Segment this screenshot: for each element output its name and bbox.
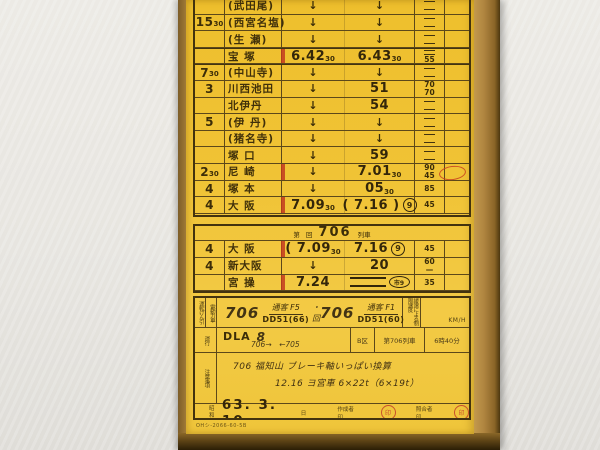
departure-cell: ( 7.16 )9 [345,197,415,213]
run-minutes-cell [195,275,225,291]
limit-cell [415,0,445,14]
arrival-cell: ↓ [282,164,345,180]
train-type-1: 通客 F5 [269,302,303,315]
arrival-pass-arrow: ↓ [308,259,317,272]
loco-row-label-1: 運転けん引 [195,298,206,327]
timetable-row: 4大 阪( 7.09307.16945 [195,241,469,258]
limit-cell [415,31,445,47]
margin-cell [445,49,469,64]
run-minutes: 4 [205,242,214,256]
arrival-cell: ↓ [282,31,345,47]
departure-cell: ↓ [345,114,415,130]
departure-cell: 51 [345,81,415,97]
duty-handwritten-note: 706→ ←705 [251,339,300,350]
speed-limit-label: 緩速による制限速度 [403,298,421,327]
arrival-pass-arrow: ↓ [308,182,317,195]
arrival-time: 7.24 [296,275,330,290]
departure-cell: ↓ [345,131,415,147]
departure-pass-arrow: ↓ [375,132,384,145]
margin-cell [445,15,469,31]
timetable-row: 宝 塚6.42306.433055 [195,48,469,65]
train-706-header: 第 回 706 列車 [195,226,469,241]
station-name: 宮 操 [228,275,256,290]
departure-cell: 市9 [345,275,415,291]
header-suffix: 列車 [358,229,371,239]
limit-cell: 55 [415,49,445,64]
train-number: 706 [318,226,351,239]
station-cell: (西宮名塩) [225,15,282,31]
maker-label: 作成者 印 [337,405,358,421]
margin-cell [445,65,469,80]
arrival-cell: ↓ [282,131,345,147]
departure-time: 59 [370,148,389,163]
run-minutes: 5 [205,115,214,129]
departure-pass-arrow: ↓ [375,116,384,129]
departure-cell: ↓ [345,15,415,31]
run-minutes-cell: 4 [195,258,225,274]
departure-pass-arrow: ↓ [375,66,384,79]
limit-value: 55 [424,56,434,64]
arrival-cell: ↓ [282,114,345,130]
departure-pass-arrow: ↓ [375,0,384,12]
arrival-cell: ↓ [282,98,345,114]
timetable-row: 塚 口↓59 [195,147,469,164]
arrival-pass-arrow: ↓ [308,0,317,12]
station-name: (猪名寺) [228,131,274,146]
departure-time: 6.43 [358,49,392,64]
departure-cell: ↓ [345,65,415,80]
departure-cell: 20 [345,258,415,274]
margin-cell [445,131,469,147]
departure-pass-arrow: ↓ [375,33,384,46]
departure-time-seconds: 30 [392,55,402,63]
departure-time: ( 7.16 ) [343,198,400,213]
run-minutes-cell [195,0,225,14]
timetable-row: (猪名寺)↓↓ [195,131,469,148]
separator: ・回 [312,302,320,324]
limit-cell [415,65,445,80]
departure-time: 7.01 [358,164,392,179]
run-minutes: 2 [200,165,209,179]
station-cell: 新大阪 [225,258,282,274]
arrival-cell: ↓ [282,15,345,31]
margin-cell [445,114,469,130]
station-name: (西宮名塩) [228,15,286,30]
run-minutes-cell [195,98,225,114]
photo-of-train-staff-card: (武田尾)↓↓1530(西宮名塩)↓↓(生 瀬)↓↓宝 塚6.42306.433… [0,0,600,450]
limit-cell [415,131,445,147]
no-limit-mark [424,50,435,55]
station-cell: 北伊丹 [225,98,282,114]
maker-stamp-icon: 印 [381,405,396,420]
loco-2: 通客 F1 DD51(60) [357,302,404,324]
era-label: 昭和 [209,406,218,418]
no-limit-mark [424,68,435,77]
run-minutes: 15 [196,15,214,29]
station-name: 尼 崎 [228,164,256,179]
arrival-pass-arrow: ↓ [308,165,317,178]
timetable-row: 4大 阪7.0930( 7.16 )945 [195,197,469,214]
arrival-pass-arrow: ↓ [308,132,317,145]
run-minutes: 3 [205,82,214,96]
arrival-pass-arrow: ↓ [308,149,317,162]
arrival-time-seconds: 30 [325,55,335,63]
arrival-pass-arrow: ↓ [308,66,317,79]
limit-cell: 85 [415,181,445,197]
limit-cell: 35 [415,275,445,291]
limit-cell: 45 [415,197,445,213]
station-name: 宝 塚 [228,49,256,64]
loco-row-label-2: 電動力車 [206,298,217,327]
timetable-row: 宮 操7.24市935 [195,275,469,292]
arrival-pass-arrow: ↓ [308,33,317,46]
departure-cell: 54 [345,98,415,114]
checker-label: 照合者印 [416,405,435,421]
station-name: (生 瀬) [228,32,267,47]
loco-1: 通客 F5 DD51(66) [262,302,309,324]
duty-row: 運行 DLA 8 706→ ←705 B区 第706列車 6時40分 [195,328,469,353]
station-cell: (生 瀬) [225,31,282,47]
margin-cell [445,258,469,274]
departure-cell: ↓ [345,31,415,47]
limit-value: 70 [424,89,434,97]
run-minutes: 4 [205,259,214,273]
margin-cell [445,81,469,97]
loco-number-2: DD51(60) [357,315,404,324]
run-minutes-cell: 3 [195,81,225,97]
departure-cell: 7.0130 [345,164,415,180]
return-train-706-table: 第 回 706 列車 4大 阪( 7.09307.169454新大阪↓2060—… [193,224,471,293]
limit-value: 45 [424,172,434,180]
run-seconds: 30 [209,170,219,178]
train-no-outbound: 706 [225,304,259,322]
station-cell: 大 阪 [225,241,282,257]
arrival-time: 7.09 [291,198,325,213]
run-minutes-cell: 4 [195,197,225,213]
departure-terminal-rule [350,277,386,287]
run-minutes-cell [195,31,225,47]
timetable-row: 北伊丹↓54 [195,98,469,115]
station-cell: 塚 口 [225,147,282,163]
note-line-2: 12.16 ヨ宮車 6×22t（6×19t） [275,376,469,389]
margin-cell [445,181,469,197]
limit-cell: 45 [415,241,445,257]
departure-cell: 0530 [345,181,415,197]
timetable-row: 4新大阪↓2060— [195,258,469,275]
dla-code: DLA [223,330,251,343]
departure-time-seconds: 30 [392,171,402,179]
run-minutes: 4 [205,198,214,212]
no-limit-mark [424,35,435,44]
limit-cell [415,98,445,114]
no-limit-mark [424,151,435,160]
limit-cell [415,147,445,163]
limit-value: 45 [424,245,434,253]
timetable-card: (武田尾)↓↓1530(西宮名塩)↓↓(生 瀬)↓↓宝 塚6.42306.433… [186,0,474,434]
departure-time-seconds: 30 [384,188,394,196]
arrival-cell: ↓ [282,81,345,97]
run-seconds: 30 [209,70,219,78]
run-minutes-cell: 1530 [195,15,225,31]
margin-cell [445,241,469,257]
timetable-row: 5(伊 丹)↓↓ [195,114,469,131]
departure-time: 7.16 [354,241,388,256]
station-name: (中山寺) [228,65,274,80]
limit-cell: 60— [415,258,445,274]
limit-cell [415,15,445,31]
locomotive-row: 運転けん引 電動力車 706 通客 F5 DD51(66) ・回 706 通客 … [195,298,469,328]
run-minutes-cell [195,131,225,147]
arrival-time-seconds: 30 [325,204,335,212]
run-minutes-cell: 230 [195,164,225,180]
station-cell: 宮 操 [225,275,282,291]
margin-cell [445,98,469,114]
limit-value: 35 [424,279,434,287]
margin-cell [445,275,469,291]
station-cell: (中山寺) [225,65,282,80]
departure-time: 05 [365,181,384,196]
limit-value: 45 [424,201,434,209]
station-name: 塚 口 [228,148,256,163]
station-cell: 宝 塚 [225,49,282,64]
note-line-1: 706 福知山 ブレーキ軸いっぱい換算 [233,359,469,372]
limit-cell [415,114,445,130]
station-name: (武田尾) [228,0,274,13]
station-name: 大 阪 [228,241,256,256]
margin-cell [445,147,469,163]
duty-cell-2: 第706列車 [375,328,425,352]
no-limit-mark [424,118,435,127]
board-bottom-edge [178,433,500,450]
duty-cell: DLA 8 706→ ←705 [217,328,351,352]
station-cell: 川西池田 [225,81,282,97]
run-minutes-cell: 4 [195,181,225,197]
run-minutes-cell: 730 [195,65,225,80]
timetable-row: 3川西池田↓517070 [195,81,469,98]
departure-cell: 6.4330 [345,49,415,64]
train-no-return: 706 [320,304,354,322]
run-minutes: 4 [205,182,214,196]
timetable-row: 1530(西宮名塩)↓↓ [195,15,469,32]
timetable-row: 730(中山寺)↓↓ [195,64,469,81]
station-name: 川西池田 [228,81,274,96]
station-name: 大 阪 [228,198,256,213]
station-name: 北伊丹 [228,98,263,113]
station-cell: (伊 丹) [225,114,282,130]
station-cell: 尼 崎 [225,164,282,180]
arrival-time: ( 7.09 [285,241,331,256]
date-row: 昭和 63. 3. 10 日 作成者 印 印 照合者印 印 [195,404,469,420]
train-type-2: 通客 F1 [364,302,398,315]
limit-cell: 7070 [415,81,445,97]
form-number: OHシ-2066-60-5B [196,422,247,429]
departure-time: 51 [370,81,389,96]
limit-value: — [426,266,434,274]
no-limit-mark [424,18,435,27]
departure-time: 20 [370,258,389,273]
kmh-unit: KM/H [448,317,466,324]
no-limit-mark [424,134,435,143]
arrival-time-seconds: 30 [331,248,341,256]
run-minutes-cell [195,147,225,163]
station-cell: (猪名寺) [225,131,282,147]
departure-pass-arrow: ↓ [375,16,384,29]
margin-cell [445,197,469,213]
arrival-cell: 7.0930 [282,197,345,213]
duty-cell-3: 6時40分 [425,328,469,352]
station-name: (伊 丹) [228,115,267,130]
no-limit-mark [424,101,435,110]
notes-row: 注意事項 706 福知山 ブレーキ軸いっぱい換算 12.16 ヨ宮車 6×22t… [195,353,469,404]
run-minutes-cell [195,49,225,64]
arrival-cell: ( 7.0930 [282,241,345,257]
timetable-row: 4塚 本↓053085 [195,181,469,198]
arrival-time: 6.42 [291,49,325,64]
platform-number-circle: 9 [391,242,405,256]
limit-value: 85 [424,185,434,193]
header-prefix: 第 [293,229,300,239]
arrival-cell: 7.24 [282,275,345,291]
run-minutes: 7 [200,66,209,80]
loco-number-1: DD51(66) [262,315,309,324]
main-timetable: (武田尾)↓↓1530(西宮名塩)↓↓(生 瀬)↓↓宝 塚6.42306.433… [193,0,471,217]
duty-label: 運行 [195,328,217,352]
day-suffix: 日 [301,409,307,417]
timetable-row: (武田尾)↓↓ [195,0,469,15]
margin-cell [445,164,469,180]
run-minutes-cell: 5 [195,114,225,130]
departure-cell: ↓ [345,0,415,14]
station-cell: (武田尾) [225,0,282,14]
arrival-pass-arrow: ↓ [308,116,317,129]
departure-cell: 7.169 [345,241,415,257]
board-right-edge [473,0,500,450]
duty-cell-1: B区 [351,328,375,352]
timetable-row: (生 瀬)↓↓ [195,31,469,48]
arrival-cell: ↓ [282,258,345,274]
header-mid: 回 [306,229,313,239]
run-seconds: 30 [213,20,223,28]
station-name: 塚 本 [228,181,256,196]
timetable-row: 230尼 崎↓7.01309045 [195,164,469,181]
station-cell: 大 阪 [225,197,282,213]
arrival-cell: ↓ [282,0,345,14]
departure-cell: 59 [345,147,415,163]
speed-limit-cell: KM/H [421,298,469,327]
arrival-cell: ↓ [282,65,345,80]
notes-label: 注意事項 [195,353,217,403]
station-cell: 塚 本 [225,181,282,197]
yard-code-circle: 市9 [389,276,410,288]
arrival-pass-arrow: ↓ [308,16,317,29]
arrival-pass-arrow: ↓ [308,99,317,112]
info-table: 運転けん引 電動力車 706 通客 F5 DD51(66) ・回 706 通客 … [193,296,471,420]
arrival-cell: ↓ [282,181,345,197]
arrival-cell: ↓ [282,147,345,163]
loco-assignment: 706 通客 F5 DD51(66) ・回 706 通客 F1 DD51(60) [217,298,403,327]
train-706-rows: 4大 阪( 7.09307.169454新大阪↓2060—宮 操7.24市935 [195,241,469,291]
notes-content: 706 福知山 ブレーキ軸いっぱい換算 12.16 ヨ宮車 6×22t（6×19… [217,353,469,403]
margin-cell [445,0,469,14]
departure-time: 54 [370,98,389,113]
arrival-pass-arrow: ↓ [308,82,317,95]
run-minutes-cell: 4 [195,241,225,257]
checker-stamp-icon: 印 [454,405,469,420]
margin-cell [445,31,469,47]
arrival-cell: 6.4230 [282,49,345,64]
station-name: 新大阪 [228,258,263,273]
no-limit-mark [424,1,435,10]
